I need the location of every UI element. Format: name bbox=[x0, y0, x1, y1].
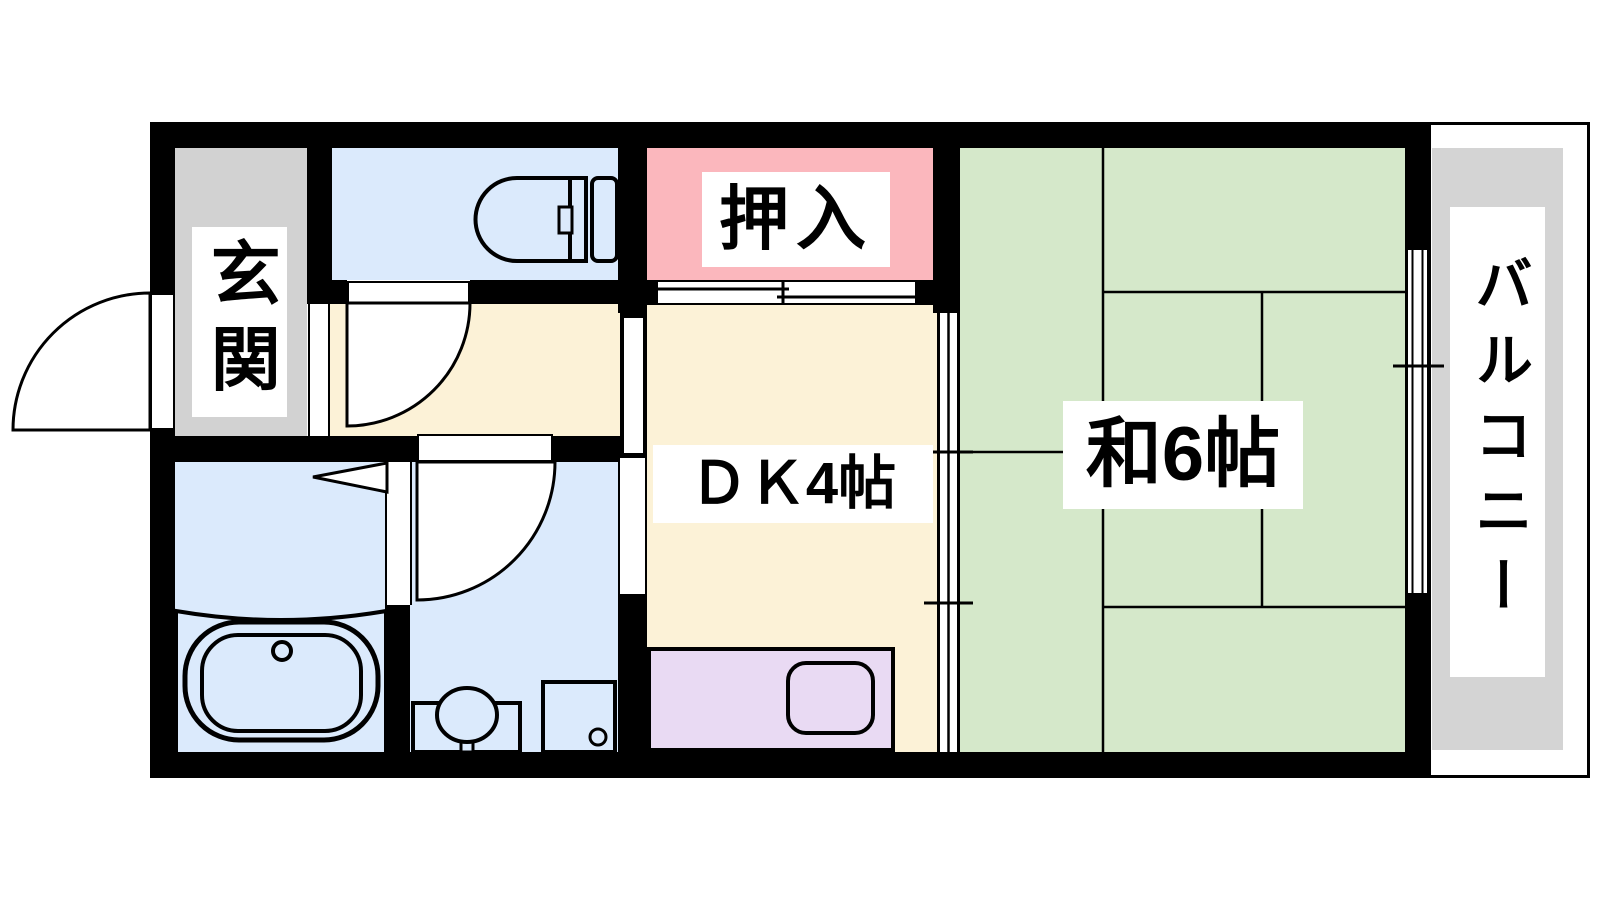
hall-dk-sliding-door bbox=[620, 313, 647, 458]
wall-hall-bottom-right bbox=[553, 436, 620, 462]
kitchen-counter bbox=[647, 647, 895, 752]
entrance-door-leaf bbox=[150, 293, 175, 430]
washroom-door-leaf bbox=[417, 434, 553, 462]
toilet-door-leaf bbox=[347, 281, 470, 304]
wall-right-upper bbox=[1405, 147, 1430, 251]
wall-oshiire-tatami bbox=[933, 147, 960, 313]
fusuma-post-left bbox=[647, 280, 658, 305]
oshiire-label: 押入 bbox=[702, 172, 890, 267]
toilet-room-floor bbox=[332, 147, 618, 280]
hallway-floor bbox=[330, 304, 620, 436]
fusuma-sliding-door bbox=[658, 280, 915, 305]
genkan-label: 玄関 bbox=[192, 227, 287, 417]
dk-tatami-sliding-door bbox=[937, 313, 960, 752]
wall-washroom-dk bbox=[618, 594, 647, 752]
bathroom-floor bbox=[175, 462, 385, 752]
balcony-label: バルコニー bbox=[1450, 207, 1545, 677]
entrance-door-arc bbox=[13, 293, 150, 430]
balcony-window bbox=[1405, 250, 1430, 593]
wall-left-upper bbox=[150, 122, 175, 294]
wall-bath-washroom bbox=[385, 605, 410, 752]
wall-top bbox=[150, 122, 1430, 148]
wall-genkan-toilet bbox=[307, 147, 332, 304]
washroom-dk-opening bbox=[618, 458, 647, 594]
floorplan-canvas: 玄関 押入 ＤＫ4帖 和6帖 バルコニー bbox=[0, 0, 1600, 900]
wall-left-lower bbox=[150, 429, 175, 778]
bathroom-door-opening bbox=[385, 462, 412, 605]
washitsu-label: 和6帖 bbox=[1063, 401, 1303, 509]
genkan-step-opening bbox=[308, 304, 330, 436]
wall-toilet-oshiire bbox=[618, 147, 647, 313]
wall-genkan-bottom bbox=[150, 436, 417, 462]
dk-label: ＤＫ4帖 bbox=[653, 445, 933, 523]
washroom-floor bbox=[410, 462, 618, 752]
wall-bottom bbox=[150, 752, 1430, 778]
wall-right-lower bbox=[1405, 593, 1430, 752]
wall-toilet-bottom-left bbox=[332, 280, 347, 304]
fusuma-post-right bbox=[915, 280, 933, 305]
